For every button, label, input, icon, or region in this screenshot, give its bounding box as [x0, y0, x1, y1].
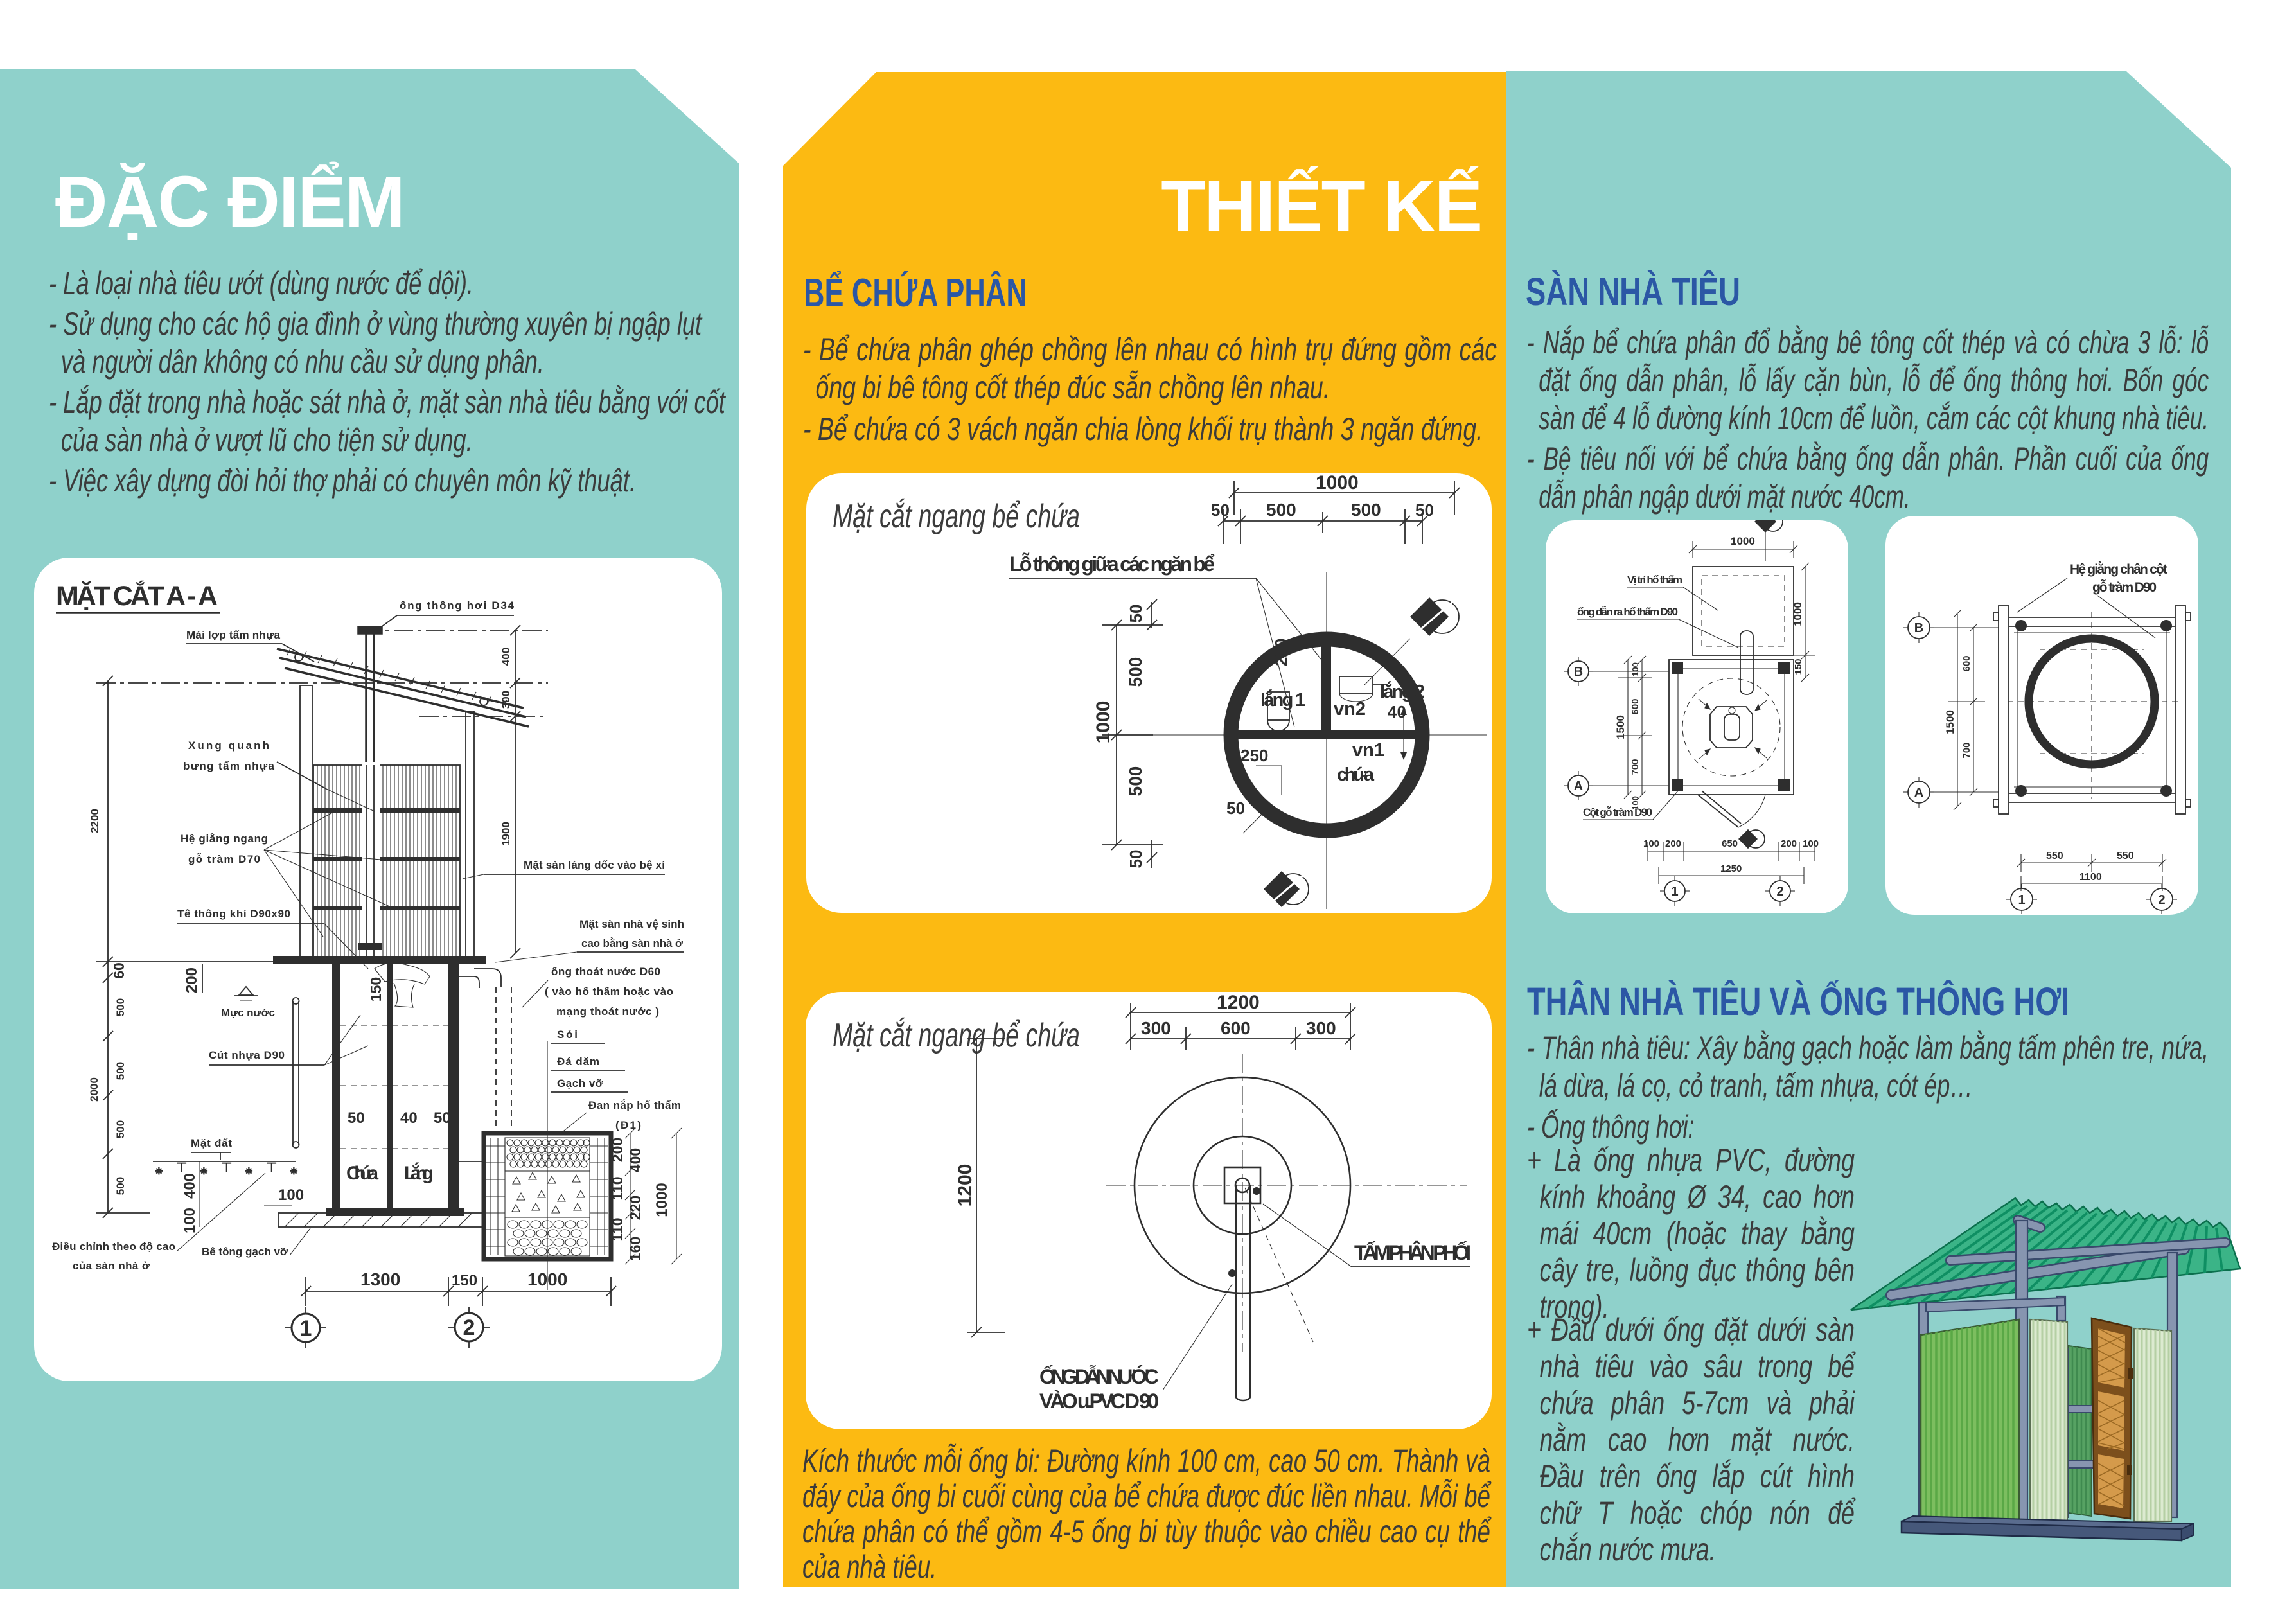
svg-text:Mặt đất: Mặt đất	[191, 1137, 232, 1149]
svg-text:1500: 1500	[1944, 710, 1956, 734]
svg-text:300: 300	[1306, 1018, 1336, 1038]
svg-text:550: 550	[2046, 851, 2063, 861]
svg-text:1000: 1000	[1316, 473, 1359, 493]
svg-text:500: 500	[114, 998, 127, 1016]
svg-text:Hệ giằng chân cột: Hệ giằng chân cột	[2070, 561, 2167, 577]
svg-text:1000: 1000	[1792, 602, 1804, 626]
svg-text:ỐNG DẪN NƯỚC: ỐNG DẪN NƯỚC	[1039, 1365, 1159, 1388]
svg-text:⊤: ⊤	[176, 1161, 187, 1175]
svg-text:A: A	[1574, 779, 1583, 793]
svg-text:1000: 1000	[653, 1183, 671, 1217]
svg-text:150: 150	[1793, 658, 1804, 675]
svg-text:⁕: ⁕	[154, 1165, 164, 1179]
svg-text:gỗ tràm D90: gỗ tràm D90	[2092, 579, 2157, 595]
svg-text:2: 2	[2158, 893, 2165, 907]
svg-text:( vào hố thấm hoặc vào: ( vào hố thấm hoặc vào	[545, 985, 673, 998]
svg-text:400: 400	[500, 648, 512, 666]
svg-text:⁕: ⁕	[288, 1165, 299, 1179]
svg-text:Điều chỉnh theo độ cao: Điều chỉnh theo độ cao	[52, 1240, 175, 1253]
svg-text:220: 220	[627, 1196, 644, 1220]
svg-text:500: 500	[1266, 500, 1296, 520]
svg-text:110: 110	[609, 1217, 626, 1241]
svg-text:Hệ giằng ngang: Hệ giằng ngang	[181, 833, 268, 845]
svg-text:50: 50	[1226, 799, 1245, 818]
svg-text:200: 200	[609, 1138, 626, 1162]
svg-text:100: 100	[1630, 662, 1640, 676]
svg-text:vn2: vn2	[1334, 699, 1366, 719]
svg-text:40: 40	[400, 1109, 418, 1127]
svg-text:Sỏi: Sỏi	[557, 1028, 578, 1041]
svg-text:1500: 1500	[1614, 715, 1627, 739]
svg-text:gỗ tràm D70: gỗ tràm D70	[188, 853, 260, 865]
svg-text:250: 250	[1240, 746, 1268, 765]
svg-text:550: 550	[2117, 851, 2134, 861]
svg-text:Đá dăm: Đá dăm	[557, 1055, 599, 1068]
svg-text:1250: 1250	[1720, 863, 1742, 874]
svg-text:lắng 2: lắng 2	[1380, 680, 1425, 702]
svg-text:TẤM PHÂN PHỐI: TẤM PHÂN PHỐI	[1354, 1241, 1471, 1264]
svg-text:250: 250	[1271, 639, 1291, 666]
svg-text:1100: 1100	[2079, 872, 2102, 883]
svg-text:110: 110	[609, 1176, 626, 1200]
svg-text:Tê thông khí D90x90: Tê thông khí D90x90	[177, 908, 290, 920]
svg-text:1: 1	[1671, 885, 1678, 899]
svg-text:500: 500	[1351, 500, 1381, 520]
svg-text:cao bằng sàn nhà ở: cao bằng sàn nhà ở	[581, 937, 684, 949]
svg-text:2: 2	[1776, 885, 1783, 899]
svg-text:mạng thoát nước ): mạng thoát nước )	[556, 1005, 659, 1018]
svg-text:Cột gỗ tràm D90: Cột gỗ tràm D90	[1583, 806, 1652, 818]
svg-text:bưng tấm nhựa: bưng tấm nhựa	[183, 760, 275, 772]
svg-text:600: 600	[1221, 1018, 1251, 1038]
svg-text:50: 50	[1126, 850, 1145, 869]
svg-text:Bê tông gạch vỡ: Bê tông gạch vỡ	[202, 1246, 288, 1258]
svg-text:300: 300	[500, 691, 512, 709]
svg-text:160: 160	[627, 1237, 644, 1261]
svg-text:vn1: vn1	[1352, 740, 1384, 761]
svg-text:700: 700	[1961, 742, 1972, 758]
svg-text:MẶT CẮT A - A: MẶT CẮT A - A	[56, 580, 218, 612]
svg-text:Đan nắp hố thấm: Đan nắp hố thấm	[588, 1099, 681, 1111]
svg-text:200: 200	[1665, 838, 1681, 849]
svg-text:Mái lợp tấm nhựa: Mái lợp tấm nhựa	[186, 629, 281, 641]
svg-text:B: B	[1914, 621, 1923, 635]
svg-text:2200: 2200	[89, 809, 101, 833]
svg-text:500: 500	[1126, 657, 1145, 687]
svg-text:100: 100	[1803, 838, 1819, 849]
svg-text:400: 400	[627, 1148, 644, 1172]
svg-text:của sàn nhà ở: của sàn nhà ở	[73, 1260, 150, 1272]
svg-text:50: 50	[1415, 500, 1434, 520]
svg-text:150: 150	[452, 1272, 477, 1289]
svg-text:1200: 1200	[955, 1164, 976, 1207]
svg-text:Xung quanh: Xung quanh	[188, 739, 269, 752]
svg-text:200: 200	[1781, 838, 1797, 849]
svg-text:Cút nhựa D90: Cút nhựa D90	[209, 1049, 285, 1061]
svg-text:150: 150	[367, 977, 384, 1002]
svg-text:Mực nước: Mực nước	[221, 1007, 275, 1019]
svg-text:500: 500	[1126, 766, 1145, 797]
svg-text:Gạch vỡ: Gạch vỡ	[557, 1077, 604, 1090]
svg-text:50: 50	[1211, 500, 1230, 520]
svg-text:50: 50	[1126, 605, 1145, 623]
svg-text:200: 200	[183, 967, 200, 993]
svg-text:50: 50	[348, 1109, 365, 1127]
svg-text:50: 50	[434, 1109, 451, 1127]
svg-text:400: 400	[181, 1173, 199, 1199]
svg-text:ống thoát nước D60: ống thoát nước D60	[551, 966, 660, 978]
svg-text:Lắng: Lắng	[404, 1162, 434, 1184]
svg-text:ống dẫn ra hố thấm D90: ống dẫn ra hố thấm D90	[1577, 606, 1678, 618]
svg-text:60: 60	[110, 962, 127, 979]
svg-text:600: 600	[1961, 655, 1972, 671]
svg-text:100: 100	[1630, 796, 1640, 810]
svg-text:1900: 1900	[500, 822, 512, 846]
svg-text:Mặt sàn láng dốc vào bệ xí: Mặt sàn láng dốc vào bệ xí	[524, 859, 666, 871]
svg-text:500: 500	[114, 1062, 127, 1080]
svg-text:1000: 1000	[527, 1269, 567, 1289]
svg-text:A: A	[1914, 786, 1923, 800]
svg-text:Vị trí hố thấm: Vị trí hố thấm	[1627, 574, 1682, 586]
svg-text:700: 700	[1630, 759, 1641, 775]
svg-text:1300: 1300	[360, 1269, 400, 1289]
svg-text:2: 2	[463, 1316, 475, 1340]
svg-text:300: 300	[1141, 1018, 1171, 1038]
svg-text:500: 500	[114, 1177, 127, 1195]
svg-text:500: 500	[114, 1120, 127, 1138]
svg-text:B: B	[1574, 665, 1583, 679]
svg-text:1000: 1000	[1093, 701, 1114, 744]
svg-text:Mặt sàn nhà vệ sinh: Mặt sàn nhà vệ sinh	[579, 918, 684, 930]
svg-text:chứa: chứa	[1337, 764, 1375, 785]
svg-text:650: 650	[1722, 838, 1738, 849]
svg-text:100: 100	[181, 1208, 199, 1233]
svg-text:100: 100	[278, 1187, 304, 1204]
svg-text:100: 100	[1643, 838, 1659, 849]
svg-text:⊤: ⊤	[266, 1161, 277, 1175]
svg-text:1: 1	[300, 1316, 312, 1341]
svg-text:Chứa: Chứa	[346, 1163, 378, 1184]
svg-text:(Đ1): (Đ1)	[615, 1119, 641, 1131]
svg-text:ống thông hơi D34: ống thông hơi D34	[400, 599, 515, 612]
svg-text:2000: 2000	[88, 1077, 100, 1102]
svg-text:⊤: ⊤	[221, 1161, 232, 1175]
svg-text:⁕: ⁕	[243, 1165, 254, 1179]
svg-text:VÀO u.PVC D 90: VÀO u.PVC D 90	[1039, 1390, 1159, 1413]
svg-text:1000: 1000	[1731, 535, 1755, 547]
svg-text:600: 600	[1630, 698, 1641, 714]
svg-text:1200: 1200	[1217, 992, 1260, 1013]
svg-text:Lỗ thông giữa các ngăn bể: Lỗ thông giữa các ngăn bể	[1009, 552, 1215, 576]
svg-text:1: 1	[2018, 893, 2025, 907]
